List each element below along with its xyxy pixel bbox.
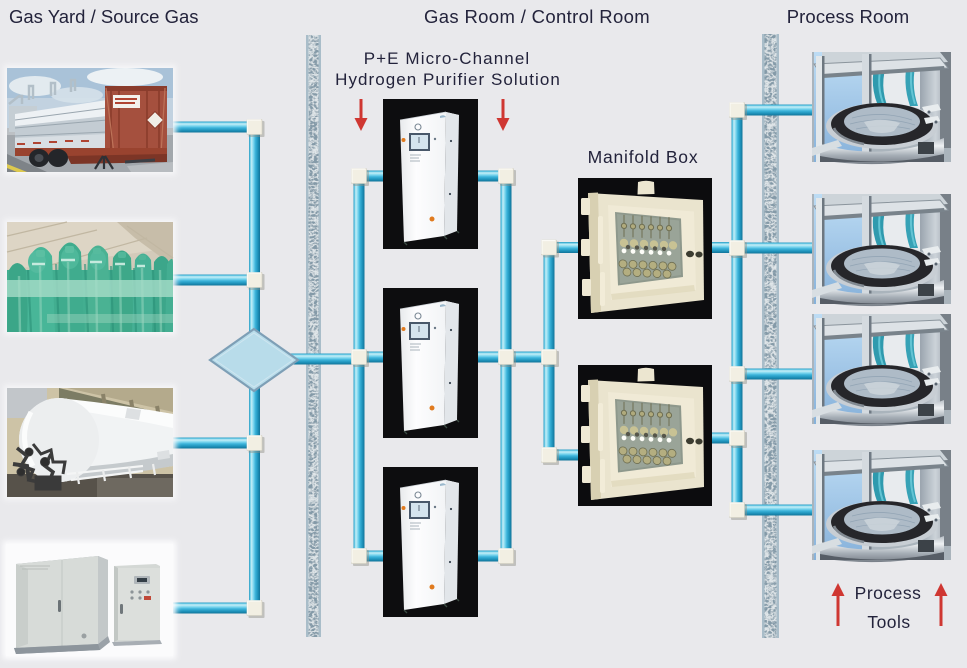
- svg-text:Manifold Box: Manifold Box: [588, 147, 699, 167]
- svg-text:Hydrogen Purifier Solution: Hydrogen Purifier Solution: [335, 70, 561, 89]
- svg-text:Process Room: Process Room: [787, 6, 910, 27]
- svg-text:Gas Yard / Source Gas: Gas Yard / Source Gas: [9, 6, 199, 27]
- svg-text:Tools: Tools: [867, 612, 910, 632]
- svg-text:Process: Process: [855, 583, 922, 603]
- svg-text:P+E Micro-Channel: P+E Micro-Channel: [364, 49, 531, 68]
- svg-text:Gas Room / Control Room: Gas Room / Control Room: [424, 6, 650, 27]
